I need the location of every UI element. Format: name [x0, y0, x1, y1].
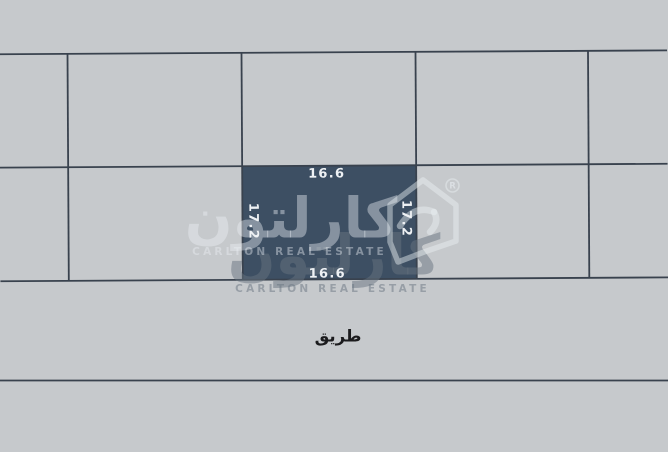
dimension-left: 17.2 — [245, 203, 260, 240]
dimension-bottom: 16.6 — [309, 266, 346, 281]
dimension-right: 17.2 — [398, 200, 413, 237]
plot-map-image: كارلتون CARLTON REAL ESTATE كارلتون CARL… — [0, 0, 668, 452]
dimension-top: 16.6 — [308, 166, 345, 181]
road-label: طريق — [315, 327, 362, 346]
dimension-labels: 16.6 16.6 17.2 17.2 — [0, 0, 668, 452]
